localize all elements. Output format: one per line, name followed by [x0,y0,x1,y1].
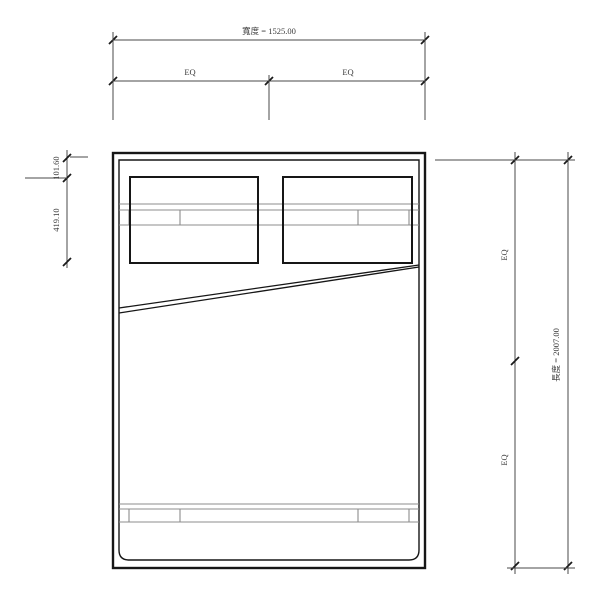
pillow-left [130,177,258,263]
width-dimension: 寬度 = 1525.00 [109,26,429,44]
pillow-offset-label: 101.60 [51,156,61,179]
fold-line [119,265,419,308]
width-eq-dimension: EQ EQ [109,32,429,120]
fold-line [119,267,419,313]
eq-left-label: EQ [184,67,195,77]
headboard-rail [119,204,419,225]
length-eq-dimension: EQ EQ [499,152,519,574]
bed-plan-drawing: 寬度 = 1525.00 EQ EQ 101.60 419.10 EQ EQ [0,0,600,600]
bed-frame [113,153,425,568]
eq-upper-label: EQ [499,249,509,260]
eq-lower-label: EQ [499,454,509,465]
drawing-canvas: 寬度 = 1525.00 EQ EQ 101.60 419.10 EQ EQ [0,0,600,600]
pillow-right [283,177,412,263]
pillow-depth-label: 419.10 [51,208,61,231]
length-dimension-label: 長度 = 2007.00 [551,328,561,382]
pillows [130,177,412,263]
mattress-edge [119,160,419,560]
length-dimension: 長度 = 2007.00 [435,152,575,574]
bed-outer-edge [113,153,425,568]
footboard-rail [119,504,419,522]
blanket-fold [119,265,419,313]
left-dimensions: 101.60 419.10 [25,150,88,268]
width-dimension-label: 寬度 = 1525.00 [242,26,296,36]
eq-right-label: EQ [342,67,353,77]
